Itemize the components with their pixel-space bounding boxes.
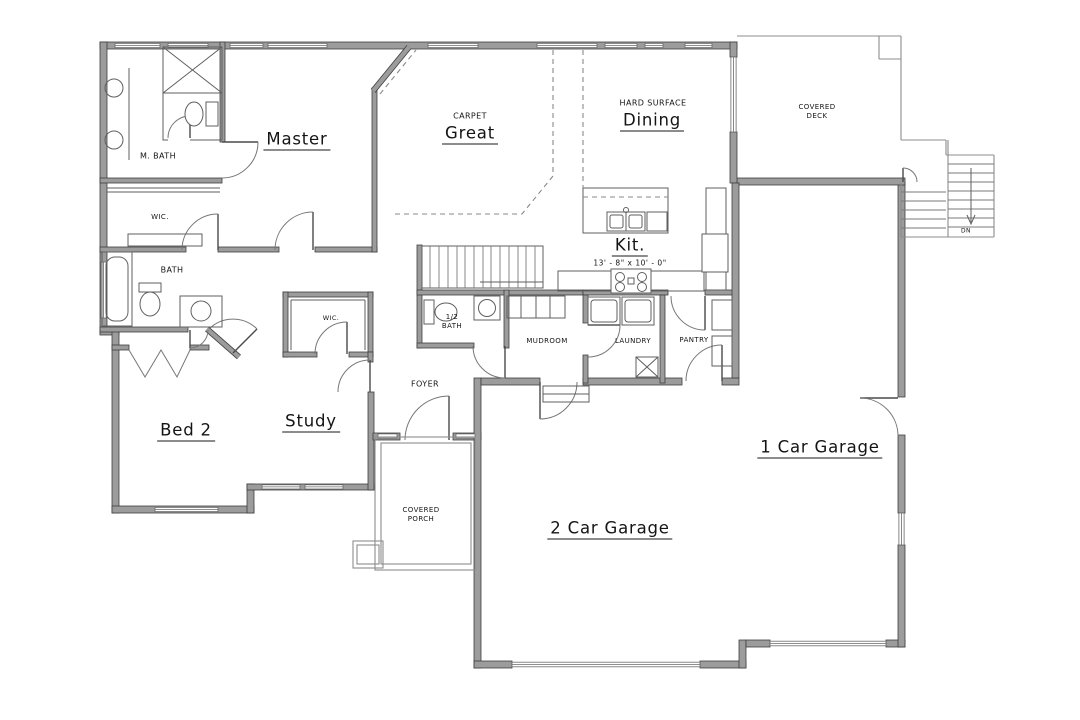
room-label-1-car-garage: 1 Car Garage <box>757 438 882 459</box>
room-label-mudroom: MUDROOM <box>526 337 567 345</box>
closet-dresser <box>128 234 202 246</box>
dryer <box>622 297 654 325</box>
surface-label-dining: HARD SURFACE <box>620 99 687 108</box>
room-label-study: Study <box>282 412 340 433</box>
pantry-shelves <box>712 300 732 330</box>
walls-layer <box>100 42 905 668</box>
toilet-tank <box>206 102 218 126</box>
toilet-tank <box>139 283 161 292</box>
room-label-half-bath: 1/2 BATH <box>442 313 462 331</box>
room-label-covered-porch: COVERED PORCH <box>403 506 440 524</box>
dishwasher <box>647 212 667 231</box>
room-label-great: Great <box>442 124 498 145</box>
room-label-foyer: FOYER <box>411 380 439 389</box>
room-label-laundry: LAUNDRY <box>615 337 651 345</box>
toilet <box>140 292 160 316</box>
washer <box>588 297 620 325</box>
room-label-pantry: PANTRY <box>679 336 708 344</box>
stairs-down-label: DN <box>961 228 971 235</box>
room-label-kitchen: Kit. <box>612 236 648 257</box>
refrigerator <box>702 234 728 272</box>
floor-plan-page: M. BATH Master WIC. CARPET Great HARD SU… <box>0 0 1080 720</box>
doors-layer <box>129 116 917 440</box>
sink <box>105 131 123 149</box>
room-label-study-closet: WIC. <box>323 314 340 322</box>
room-label-bath: BATH <box>161 266 184 275</box>
kitchen-dimensions: 13' - 8" x 10' - 0" <box>593 259 666 268</box>
room-label-master: Master <box>263 130 330 151</box>
room-label-covered-deck: COVERED DECK <box>799 103 836 121</box>
toilet-tank <box>424 300 434 324</box>
main-stairs <box>422 246 543 288</box>
room-label-2-car-garage: 2 Car Garage <box>547 519 672 540</box>
toilet <box>185 102 203 126</box>
surface-label-great: CARPET <box>453 112 487 121</box>
room-label-master-bath: M. BATH <box>140 152 176 161</box>
room-label-bed2: Bed 2 <box>157 421 215 442</box>
sink <box>105 79 123 97</box>
room-label-master-closet: WIC. <box>151 213 169 221</box>
sink <box>191 301 211 321</box>
sink <box>479 300 496 317</box>
room-label-dining: Dining <box>620 111 684 132</box>
deck-layer <box>737 36 994 237</box>
floor-plan-drawing <box>0 0 1080 720</box>
